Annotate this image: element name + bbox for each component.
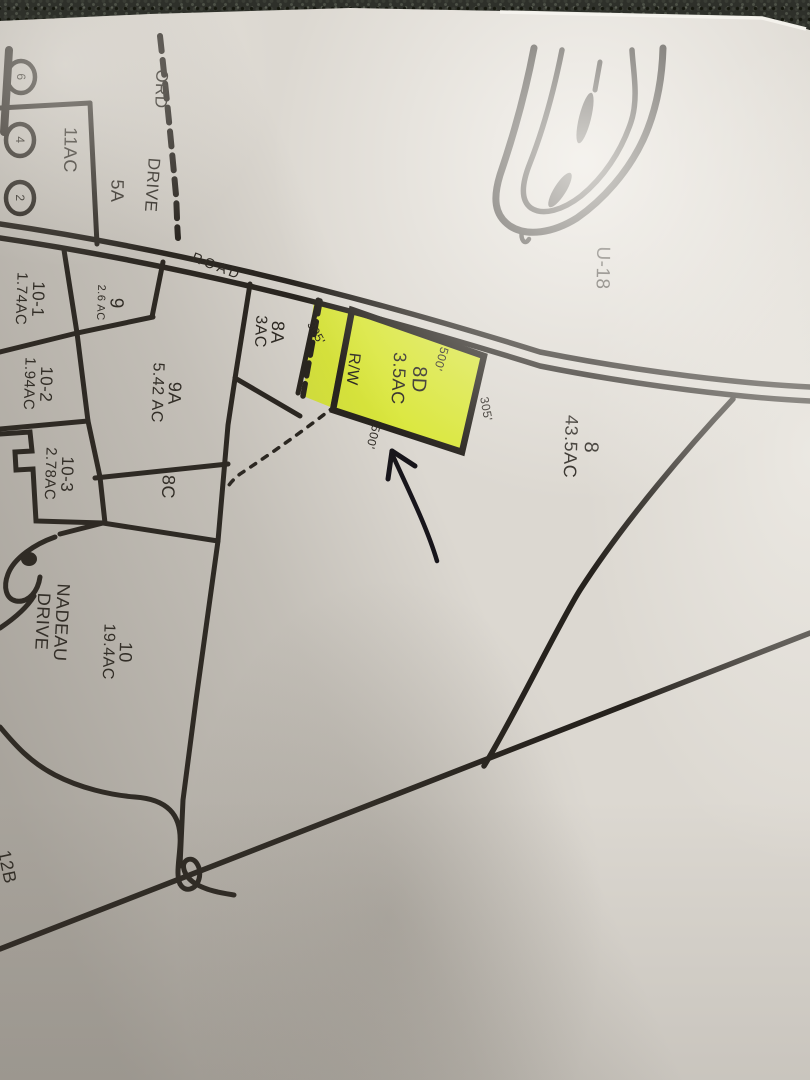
parcel-label-10-1: 10-11.74AC xyxy=(12,272,47,326)
lot-circle-number-2: 2 xyxy=(14,194,26,201)
photo-of-tax-map: ORD DRIVE ROAD 6 4 2 11AC 5A 92.6 AC 10-… xyxy=(0,0,810,1080)
parcel-boundary xyxy=(90,103,97,244)
parcel-boundary xyxy=(88,421,105,523)
cut-edge-line xyxy=(4,50,9,132)
parcel-boundary xyxy=(152,262,163,317)
map-line-work xyxy=(0,0,810,1080)
street-name-nadeau-drive: NADEAUDRIVE xyxy=(31,582,72,662)
arrow-annotation xyxy=(388,451,437,561)
parcel-label-9: 92.6 AC xyxy=(94,284,126,321)
right-of-way-label: R/W xyxy=(342,352,362,386)
parcel-10-west-boundary xyxy=(180,284,250,866)
parcel-label-10-3: 10-32.78AC xyxy=(41,447,76,501)
lot-circle-number-6: 6 xyxy=(15,73,27,80)
paper-edge-highlight xyxy=(500,12,806,29)
parcel-label-10-2: 10-21.94AC xyxy=(20,357,55,411)
parcel-boundary xyxy=(64,250,77,333)
parcel-boundary xyxy=(77,333,88,421)
parcel-label-8: 843.5AC xyxy=(560,415,602,479)
pond-outline xyxy=(496,48,663,242)
parcel-label-10: 1019.4AC xyxy=(98,623,135,681)
street-name-drive: DRIVE xyxy=(141,157,162,213)
parcel-label-8a: 8A3AC xyxy=(250,315,287,349)
parcel-label-9a: 9A5.42 AC xyxy=(147,362,184,424)
dotted-boundary xyxy=(227,406,335,488)
stream-line xyxy=(0,727,234,895)
road-junction-blob xyxy=(21,552,37,566)
street-name-partial: ORD xyxy=(151,69,170,109)
zone-label-u18: U-18 xyxy=(592,246,613,290)
parcel-label-8d-highlighted: 8D3.5AC xyxy=(388,352,430,407)
parcel-boundary xyxy=(60,523,218,541)
lot-circle-number-4: 4 xyxy=(14,136,26,143)
parcel-boundary xyxy=(0,421,88,429)
parcel-label-11ac: 11AC xyxy=(60,127,80,173)
parcel-8a-south-boundary xyxy=(235,378,300,416)
ord-drive-dashed-road xyxy=(160,36,178,238)
parcel-boundary xyxy=(0,103,90,108)
measurement-305-se: 305' xyxy=(478,396,495,422)
parcel-label-8c: 8C xyxy=(158,475,178,500)
parcel-label-5a: 5A xyxy=(107,179,126,202)
